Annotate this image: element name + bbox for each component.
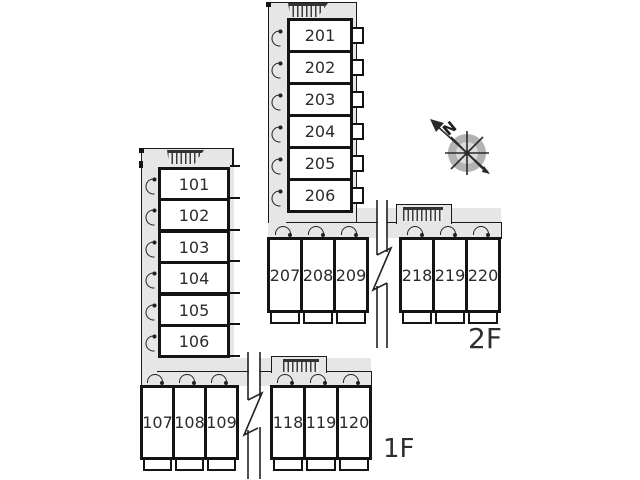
room-203: 203 — [287, 82, 353, 117]
compass-icon: N — [424, 108, 514, 198]
door-icon — [272, 95, 281, 111]
room-219: 219 — [432, 237, 468, 313]
door-icon — [146, 242, 155, 258]
balcony-divider — [230, 355, 240, 357]
door-icon — [146, 305, 155, 321]
door-icon — [310, 374, 326, 383]
room-202: 202 — [287, 50, 353, 85]
door-icon — [341, 226, 357, 235]
balcony-203 — [351, 91, 364, 108]
door-icon — [275, 226, 291, 235]
balcony-201 — [351, 27, 364, 44]
room-106: 106 — [158, 324, 230, 358]
door-icon — [343, 374, 359, 383]
room-102: 102 — [158, 198, 230, 232]
door-icon — [146, 273, 155, 289]
floor-2f-label: 2F — [468, 322, 502, 355]
floor-plan: 201 202 203 204 205 206 207 208 209 218 … — [0, 0, 640, 480]
1f-stairs-icon — [283, 359, 319, 372]
door-icon — [147, 374, 163, 383]
room-220: 220 — [465, 237, 501, 313]
balcony-divider — [230, 260, 240, 262]
compass-north-label: N — [439, 118, 460, 140]
door-icon — [146, 210, 155, 226]
balcony-divider — [230, 197, 240, 199]
door-icon — [440, 226, 456, 235]
room-105: 105 — [158, 293, 230, 327]
room-120: 120 — [336, 385, 372, 460]
balcony-205 — [351, 155, 364, 172]
door-icon — [179, 374, 195, 383]
room-109: 109 — [204, 385, 239, 460]
2f-stairs-icon — [403, 207, 443, 221]
room-209: 209 — [333, 237, 369, 313]
balcony-divider — [230, 292, 240, 294]
door-icon — [272, 127, 281, 143]
room-103: 103 — [158, 230, 230, 264]
1f-corner-mark — [139, 161, 143, 168]
room-119: 119 — [303, 385, 339, 460]
door-icon — [272, 63, 281, 79]
2f-corner-mark — [266, 2, 271, 7]
room-107: 107 — [140, 385, 175, 460]
door-icon — [407, 226, 423, 235]
room-118: 118 — [270, 385, 306, 460]
room-208: 208 — [300, 237, 336, 313]
room-206: 206 — [287, 178, 353, 213]
2f-plan-break-symbol — [368, 200, 396, 348]
room-207: 207 — [267, 237, 303, 313]
door-icon — [272, 159, 281, 175]
room-201: 201 — [287, 18, 353, 53]
door-icon — [146, 336, 155, 352]
balcony-divider — [230, 229, 240, 231]
room-101: 101 — [158, 167, 230, 201]
1f-outline-segment — [232, 148, 234, 166]
balcony-202 — [351, 59, 364, 76]
door-icon — [146, 179, 155, 195]
balcony-206 — [351, 187, 364, 204]
balcony-204 — [351, 123, 364, 140]
room-108: 108 — [172, 385, 207, 460]
balcony-divider — [230, 323, 240, 325]
door-icon — [272, 31, 281, 47]
1f-corner-mark — [139, 148, 144, 153]
room-104: 104 — [158, 261, 230, 295]
door-icon — [211, 374, 227, 383]
floor-1f-label: 1F — [383, 434, 415, 464]
room-205: 205 — [287, 146, 353, 181]
door-icon — [277, 374, 293, 383]
1f-plan-break-symbol — [241, 352, 269, 479]
door-icon — [308, 226, 324, 235]
door-icon — [272, 191, 281, 207]
room-204: 204 — [287, 114, 353, 149]
door-icon — [473, 226, 489, 235]
room-218: 218 — [399, 237, 435, 313]
